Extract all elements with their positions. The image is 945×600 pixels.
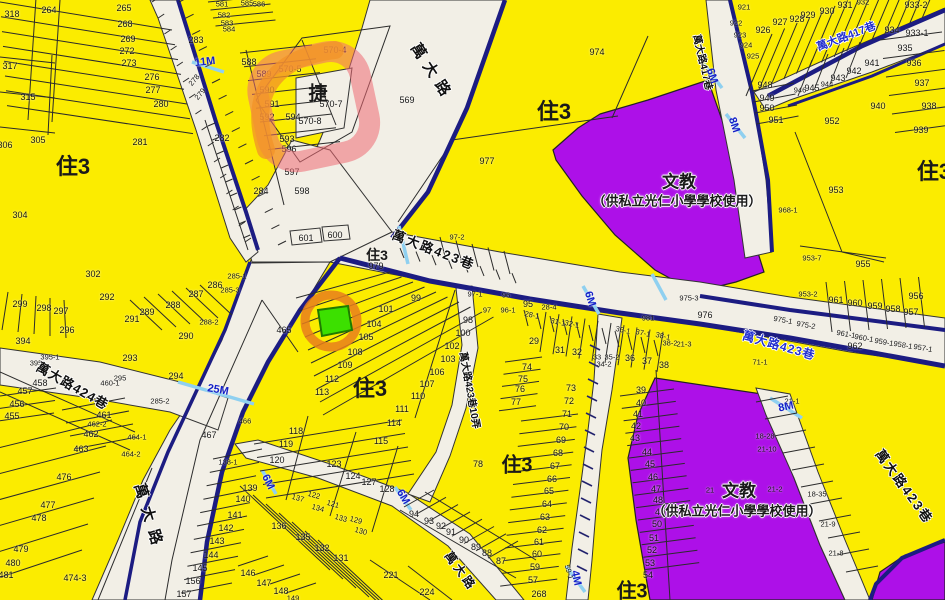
map-base-layer	[0, 0, 945, 600]
parcel-600-white	[322, 225, 350, 241]
parcel-601-white	[290, 228, 322, 245]
map-canvas[interactable]: 3182642652682692722732762772802812832822…	[0, 0, 945, 600]
